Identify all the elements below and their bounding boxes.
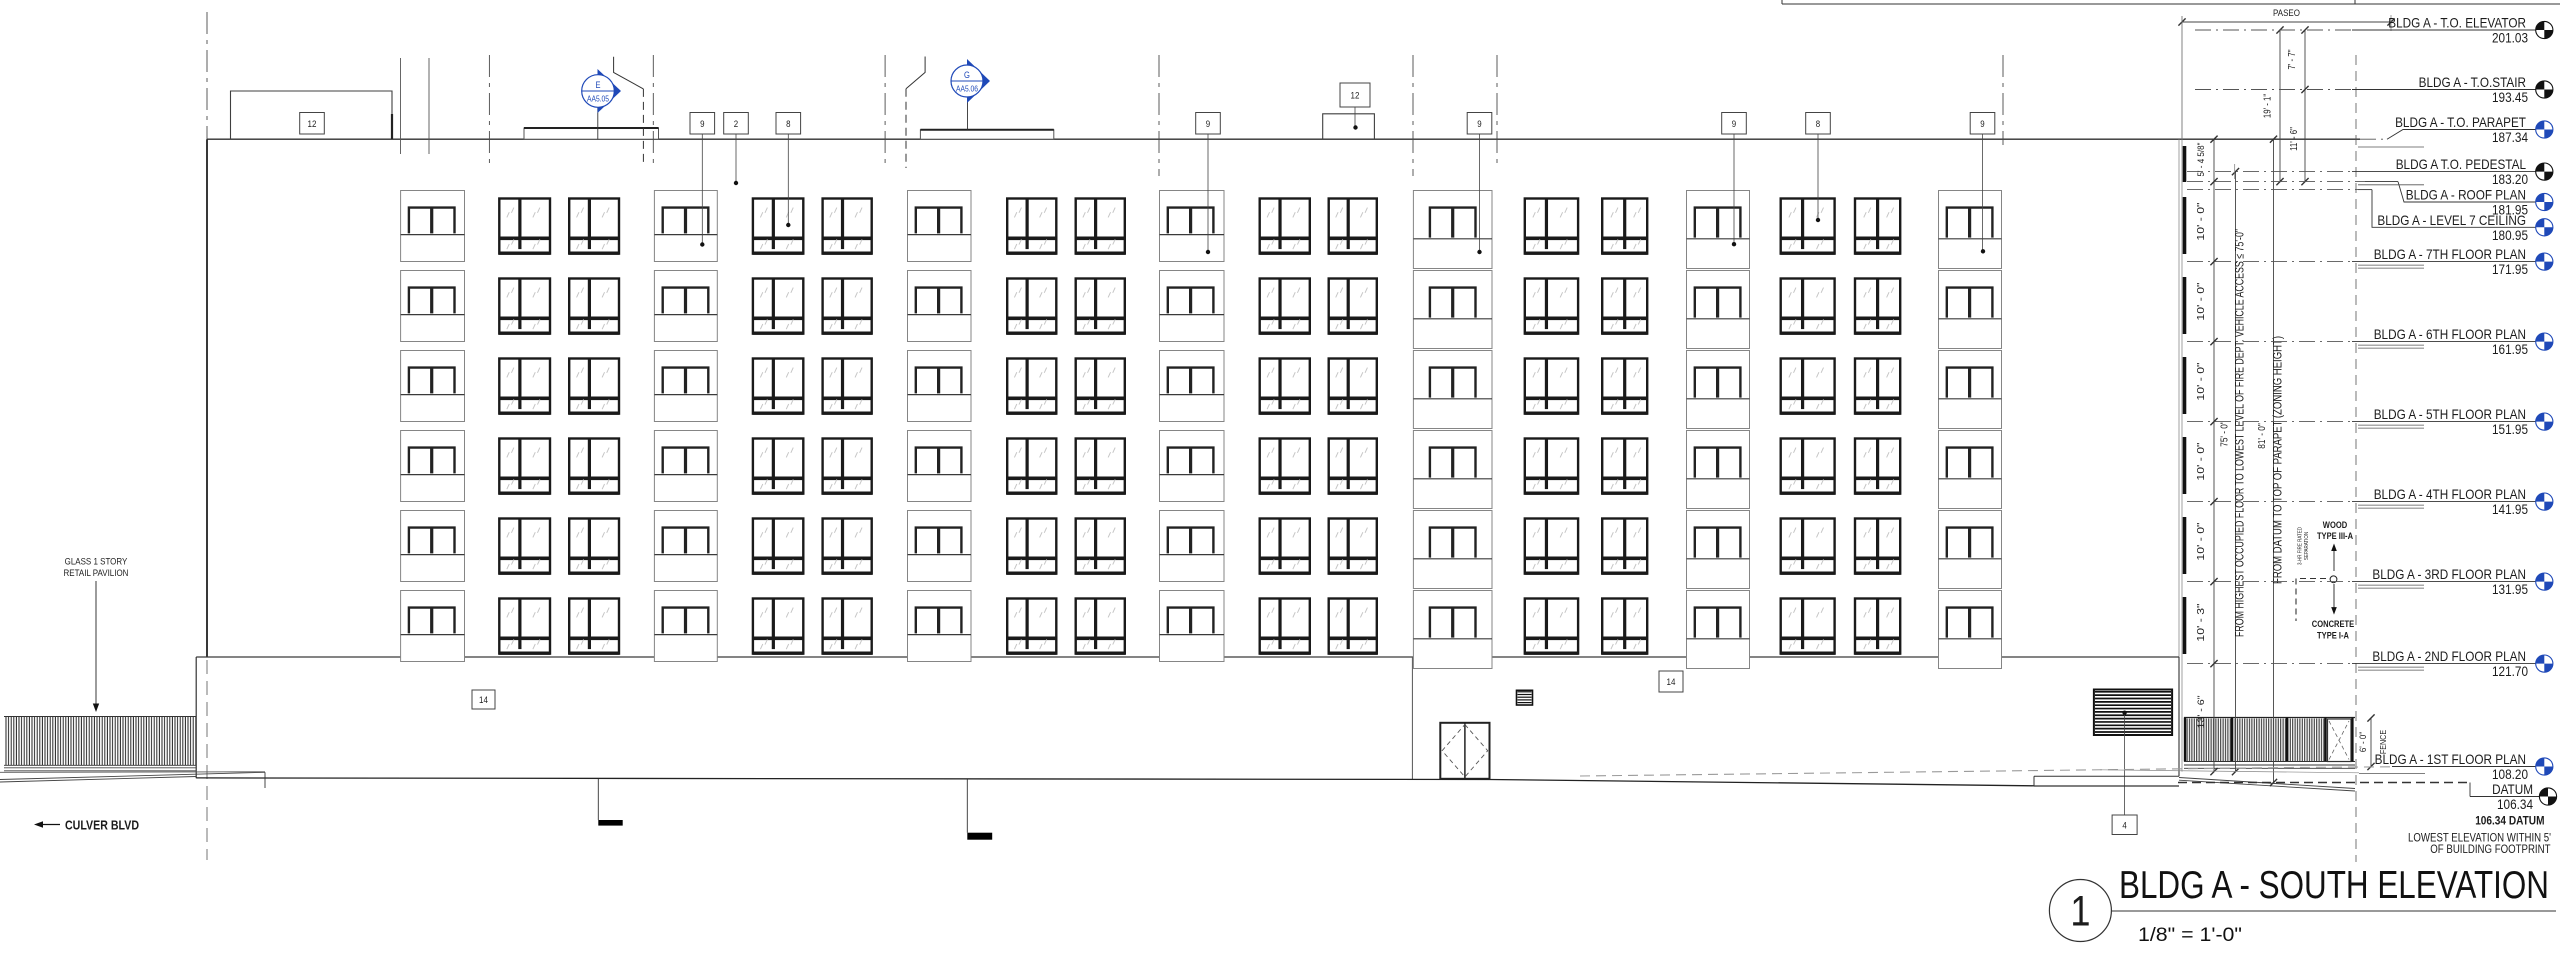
svg-text:G: G [964, 70, 970, 80]
svg-text:BLDG A - 2ND FLOOR PLAN: BLDG A - 2ND FLOOR PLAN [2372, 648, 2526, 664]
svg-text:9: 9 [1477, 119, 1481, 130]
svg-text:PASEO: PASEO [2273, 8, 2300, 19]
svg-text:TYPE III-A: TYPE III-A [2317, 531, 2354, 541]
svg-text:9: 9 [1206, 119, 1210, 130]
svg-text:12: 12 [308, 119, 317, 130]
svg-text:FROM DATUM TO TOP OF PARAPET (: FROM DATUM TO TOP OF PARAPET (ZONING HEI… [2273, 336, 2285, 584]
svg-text:14: 14 [1667, 677, 1676, 688]
svg-text:3-HR FIRE RATED: 3-HR FIRE RATED [2298, 527, 2304, 565]
svg-text:10' - 0": 10' - 0" [2196, 442, 2207, 480]
svg-text:10' - 0": 10' - 0" [2196, 362, 2207, 400]
svg-text:FROM HIGHEST OCCUPIED FLOOR TO: FROM HIGHEST OCCUPIED FLOOR TO LOWEST LE… [2235, 229, 2247, 637]
svg-text:WOOD: WOOD [2323, 520, 2348, 530]
svg-text:BLDG A - 7TH FLOOR PLAN: BLDG A - 7TH FLOOR PLAN [2374, 246, 2526, 262]
svg-text:6' - 0": 6' - 0" [2358, 732, 2369, 752]
svg-text:187.34: 187.34 [2492, 129, 2528, 145]
svg-text:10' - 0": 10' - 0" [2196, 522, 2207, 560]
svg-text:193.45: 193.45 [2492, 89, 2528, 105]
svg-text:BLDG A - 3RD FLOOR PLAN: BLDG A - 3RD FLOOR PLAN [2372, 566, 2526, 582]
svg-text:2: 2 [734, 119, 738, 130]
svg-text:OF BUILDING FOOTPRINT: OF BUILDING FOOTPRINT [2430, 844, 2550, 856]
svg-text:1: 1 [2070, 888, 2090, 936]
svg-text:BLDG A - 6TH FLOOR PLAN: BLDG A - 6TH FLOOR PLAN [2374, 326, 2526, 342]
svg-text:8: 8 [1816, 119, 1820, 130]
svg-text:E: E [596, 80, 601, 90]
svg-text:9: 9 [1980, 119, 1984, 130]
svg-text:CONCRETE: CONCRETE [2312, 619, 2354, 629]
svg-text:13' - 6": 13' - 6" [2196, 696, 2206, 729]
svg-text:BLDG A - 4TH FLOOR PLAN: BLDG A - 4TH FLOOR PLAN [2374, 486, 2526, 502]
svg-text:AA5.06: AA5.06 [956, 84, 978, 94]
svg-text:81' - 0": 81' - 0" [2257, 423, 2268, 449]
svg-text:SEPARATION: SEPARATION [2304, 532, 2310, 560]
svg-text:108.20: 108.20 [2492, 766, 2528, 782]
svg-text:RETAIL PAVILION: RETAIL PAVILION [64, 568, 129, 579]
svg-text:19' - 1": 19' - 1" [2263, 93, 2274, 118]
svg-text:DATUM: DATUM [2492, 781, 2533, 797]
svg-text:180.95: 180.95 [2492, 227, 2528, 243]
svg-text:75' - 0": 75' - 0" [2220, 421, 2231, 447]
svg-text:AA5.05: AA5.05 [587, 94, 609, 104]
svg-text:183.20: 183.20 [2492, 171, 2528, 187]
svg-text:121.70: 121.70 [2492, 663, 2528, 679]
svg-text:1/8" = 1'-0": 1/8" = 1'-0" [2138, 925, 2242, 946]
svg-text:201.03: 201.03 [2492, 30, 2528, 46]
svg-text:106.34: 106.34 [2497, 796, 2533, 812]
svg-text:7' - 7": 7' - 7" [2287, 49, 2298, 69]
svg-text:9: 9 [700, 119, 704, 130]
svg-text:10' - 0": 10' - 0" [2196, 282, 2207, 320]
svg-text:LOWEST ELEVATION WITHIN 5': LOWEST ELEVATION WITHIN 5' [2408, 833, 2551, 845]
svg-text:4: 4 [2122, 820, 2126, 831]
svg-text:151.95: 151.95 [2492, 421, 2528, 437]
svg-text:TYPE I-A: TYPE I-A [2317, 631, 2349, 641]
svg-text:BLDG A - ROOF PLAN: BLDG A - ROOF PLAN [2406, 187, 2526, 203]
svg-text:BLDG A - LEVEL 7 CEILING: BLDG A - LEVEL 7 CEILING [2377, 212, 2526, 228]
svg-text:GLASS 1 STORY: GLASS 1 STORY [65, 557, 128, 568]
svg-text:12: 12 [1351, 91, 1360, 102]
svg-text:BLDG A - 1ST FLOOR PLAN: BLDG A - 1ST FLOOR PLAN [2375, 751, 2526, 767]
svg-text:BLDG A - T.O. ELEVATOR: BLDG A - T.O. ELEVATOR [2388, 15, 2526, 31]
svg-text:BLDG A - T.O. PARAPET: BLDG A - T.O. PARAPET [2395, 114, 2526, 130]
svg-text:171.95: 171.95 [2492, 261, 2528, 277]
svg-text:BLDG A - T.O.STAIR: BLDG A - T.O.STAIR [2419, 74, 2526, 90]
svg-text:BLDG A - SOUTH ELEVATION: BLDG A - SOUTH ELEVATION [2119, 864, 2549, 907]
svg-text:CULVER BLVD: CULVER BLVD [65, 819, 139, 833]
svg-text:141.95: 141.95 [2492, 501, 2528, 517]
svg-text:8: 8 [786, 119, 790, 130]
svg-text:BLDG A - 5TH FLOOR PLAN: BLDG A - 5TH FLOOR PLAN [2374, 406, 2526, 422]
svg-text:11' - 6": 11' - 6" [2289, 127, 2300, 151]
svg-text:BLDG A T.O. PEDESTAL: BLDG A T.O. PEDESTAL [2396, 156, 2526, 172]
svg-text:161.95: 161.95 [2492, 341, 2528, 357]
svg-text:10' - 0": 10' - 0" [2196, 202, 2207, 240]
svg-text:14: 14 [479, 695, 488, 706]
svg-text:131.95: 131.95 [2492, 581, 2528, 597]
svg-text:106.34 DATUM: 106.34 DATUM [2475, 814, 2544, 828]
svg-text:10' - 3": 10' - 3" [2196, 603, 2207, 641]
svg-text:9: 9 [1732, 119, 1736, 130]
